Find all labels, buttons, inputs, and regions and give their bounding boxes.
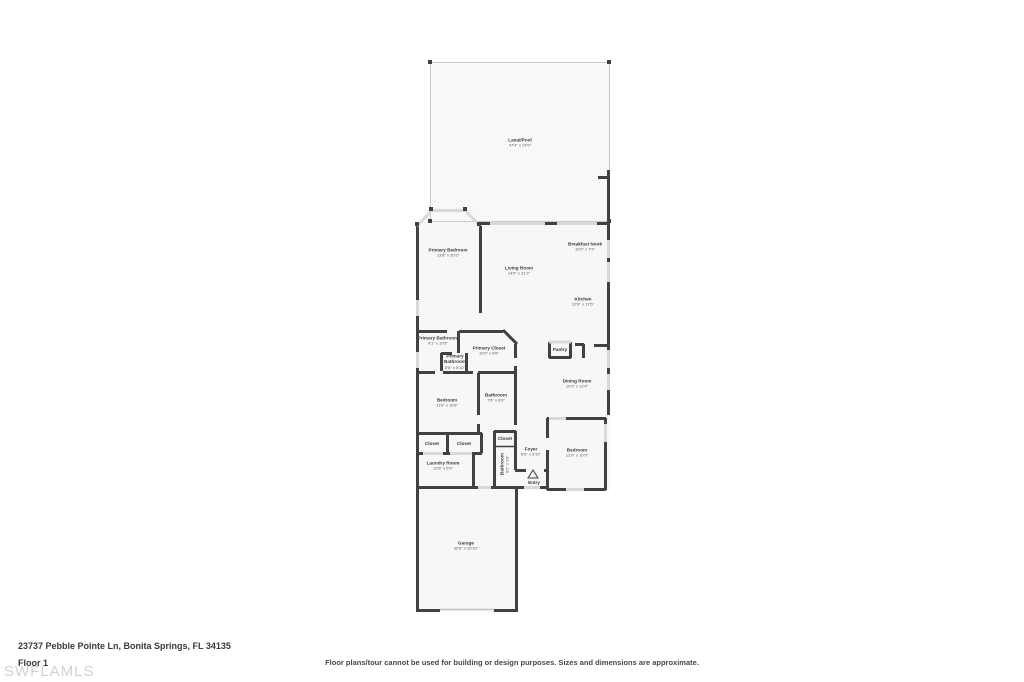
room-label-hall-bathroom: Bathroom 8'2" x 3'6": [499, 453, 510, 475]
room-label-bedroom-left: Bedroom 11'8" x 10'8": [436, 397, 458, 408]
room-label-kitchen: Kitchen 10'9" x 17'6": [572, 296, 594, 307]
room-label-closet-a: Closet: [425, 441, 439, 447]
property-address: 23737 Pebble Pointe Ln, Bonita Springs, …: [18, 641, 231, 651]
room-label-closet-c: Closet: [498, 436, 512, 442]
floor-plan-drawing: [0, 0, 1024, 682]
room-label-entry: Entry: [528, 480, 540, 486]
room-label-closet-b: Closet: [457, 441, 471, 447]
room-label-primary-bathroom-2: Primary Bathroom 5'8" x 5'10": [436, 353, 473, 370]
room-label-bathroom: Bathroom 7'6" x 6'6": [485, 392, 507, 403]
room-label-living-room: Living Room 14'9" x 21'2": [505, 265, 533, 276]
room-label-lanai-pool: Lanai/Pool 47'4" x 24'9": [508, 137, 531, 148]
room-label-foyer: Foyer 6'5" x 6'10": [521, 446, 541, 457]
room-label-pantry: Pantry: [553, 347, 567, 353]
room-label-laundry-room: Laundry Room 10'5" x 6'9": [427, 460, 460, 471]
room-label-bedroom-right: Bedroom 12'0" x 10'9": [566, 447, 588, 458]
room-label-dining-room: Dining Room 10'3" x 12'4": [563, 378, 592, 389]
disclaimer-text: Floor plans/tour cannot be used for buil…: [0, 658, 1024, 667]
room-label-garage: Garage 30'5" x 20'10": [454, 540, 479, 551]
room-label-primary-closet: Primary Closet 10'0" x 6'6": [473, 345, 506, 356]
room-label-primary-bedroom: Primary Bedroom 13'8" x 20'3": [429, 247, 468, 258]
room-label-breakfast-nook: Breakfast Nook 10'9" x 7'9": [568, 241, 602, 252]
room-label-primary-bathroom: Primary Bathroom 9'1" x 10'5": [418, 335, 458, 346]
floor-plan-page: Lanai/Pool 47'4" x 24'9" Primary Bedroom…: [0, 0, 1024, 682]
